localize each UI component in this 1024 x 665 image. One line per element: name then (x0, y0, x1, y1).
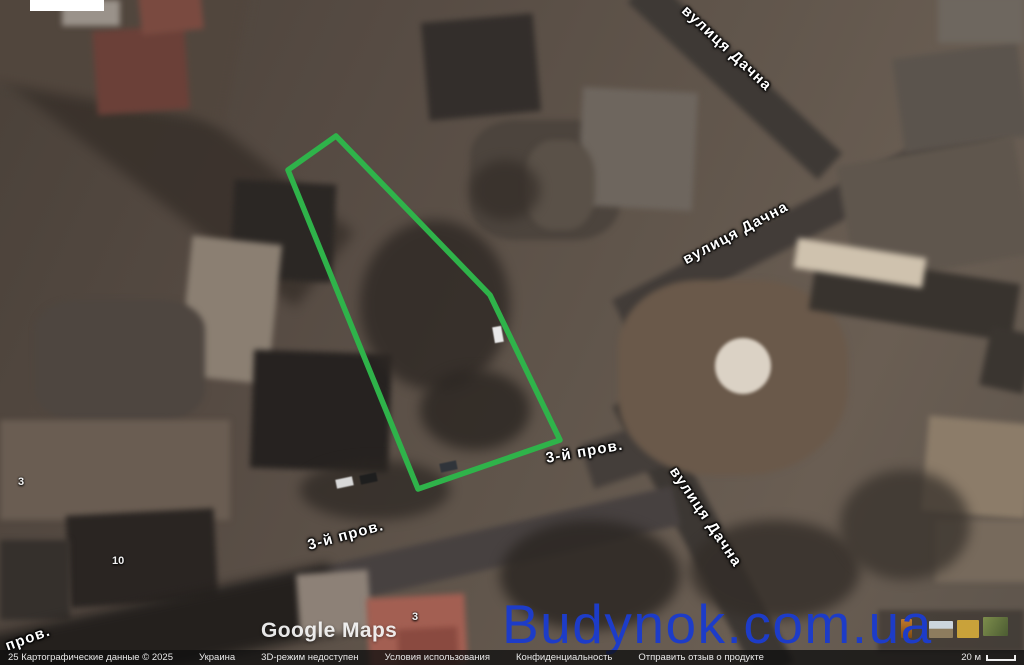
tree-patch (360, 220, 510, 390)
tree-patch (470, 160, 540, 220)
map-scale: 20 м (961, 652, 1016, 663)
attribution-bar: 25 Картографические данные © 2025 Украин… (0, 650, 1024, 665)
building-roof (92, 25, 190, 115)
map-canvas[interactable]: вулиця Дачна вулиця Дачна вулиця Дачна 3… (0, 0, 1024, 665)
building-roof (250, 350, 392, 473)
feedback-link[interactable]: Отправить отзыв о продукте (638, 652, 764, 663)
helipad-circle (715, 338, 771, 394)
map-copyright: 25 Картографические данные © 2025 (8, 652, 173, 663)
scale-bar (986, 655, 1016, 661)
house-number: 10 (112, 555, 124, 567)
site-watermark: Budynok.com.ua (502, 592, 933, 656)
attribution-3d-status: 3D-режим недоступен (261, 652, 358, 663)
building-roof (938, 0, 1024, 43)
building-roof (0, 540, 70, 620)
house-number: 3 (18, 476, 24, 488)
terms-link[interactable]: Условия использования (385, 652, 490, 663)
google-maps-watermark[interactable]: Google Maps (261, 619, 397, 643)
privacy-link[interactable]: Конфиденциальность (516, 652, 612, 663)
attribution-country: Украина (199, 652, 235, 663)
photo-thumbnail[interactable] (983, 617, 1008, 636)
photo-thumbnail[interactable] (957, 620, 979, 638)
terrain-patch (35, 300, 205, 420)
house-number: 3 (412, 611, 418, 623)
tree-patch (420, 370, 530, 450)
tree-patch (840, 470, 970, 580)
white-ui-box (30, 0, 104, 11)
street-label-3rd-lane-west: 3-й пров. (306, 517, 386, 554)
scale-label: 20 м (961, 652, 981, 663)
building-roof (577, 87, 698, 211)
building-roof (421, 13, 541, 120)
terrain-patch (0, 420, 230, 520)
car (439, 460, 457, 472)
tree-patch (300, 460, 450, 520)
